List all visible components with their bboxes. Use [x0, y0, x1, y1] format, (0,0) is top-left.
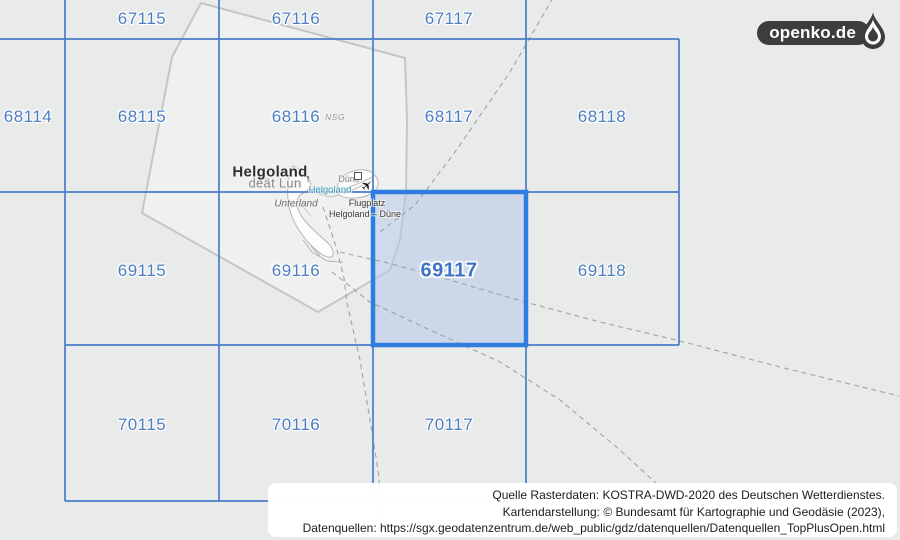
map[interactable]: 67115 67116 67117 68114 68115 68116 6811… [0, 0, 900, 540]
grid-cell-label-68114[interactable]: 68114 [4, 107, 53, 127]
grid-cell-label-68115[interactable]: 68115 [118, 107, 167, 127]
grid-cell-label-70117[interactable]: 70117 [425, 415, 474, 435]
logo[interactable]: openko.de [757, 11, 888, 54]
grid-cell-label-68117[interactable]: 68117 [425, 107, 474, 127]
grid-cell-label-67115[interactable]: 67115 [118, 9, 167, 29]
attribution-license: Kartendarstellung: © Bundesamt für Karto… [276, 504, 885, 521]
logo-text: openko.de [757, 21, 870, 45]
grid-cell-label-68118[interactable]: 68118 [578, 107, 627, 127]
attribution-data-url: Datenquellen: https://sgx.geodatenzentru… [276, 520, 885, 537]
grid-cell-label-67116[interactable]: 67116 [272, 9, 321, 29]
grid-cell-label-70115[interactable]: 70115 [118, 415, 167, 435]
droplet-icon [858, 11, 888, 54]
grid-cell-label-69118[interactable]: 69118 [578, 261, 627, 281]
grid-cell-label-69117-selected[interactable]: 69117 [420, 260, 477, 283]
grid-cell-label-69116[interactable]: 69116 [272, 261, 321, 281]
attribution-box: Quelle Rasterdaten: KOSTRA-DWD-2020 des … [268, 483, 897, 537]
grid-cell-label-69115[interactable]: 69115 [118, 261, 167, 281]
grid-cell-label-67117[interactable]: 67117 [425, 9, 474, 29]
grid-cell-label-70116[interactable]: 70116 [272, 415, 321, 435]
grid-cell-label-68116[interactable]: 68116 [272, 107, 321, 127]
attribution-source: Quelle Rasterdaten: KOSTRA-DWD-2020 des … [276, 487, 885, 504]
